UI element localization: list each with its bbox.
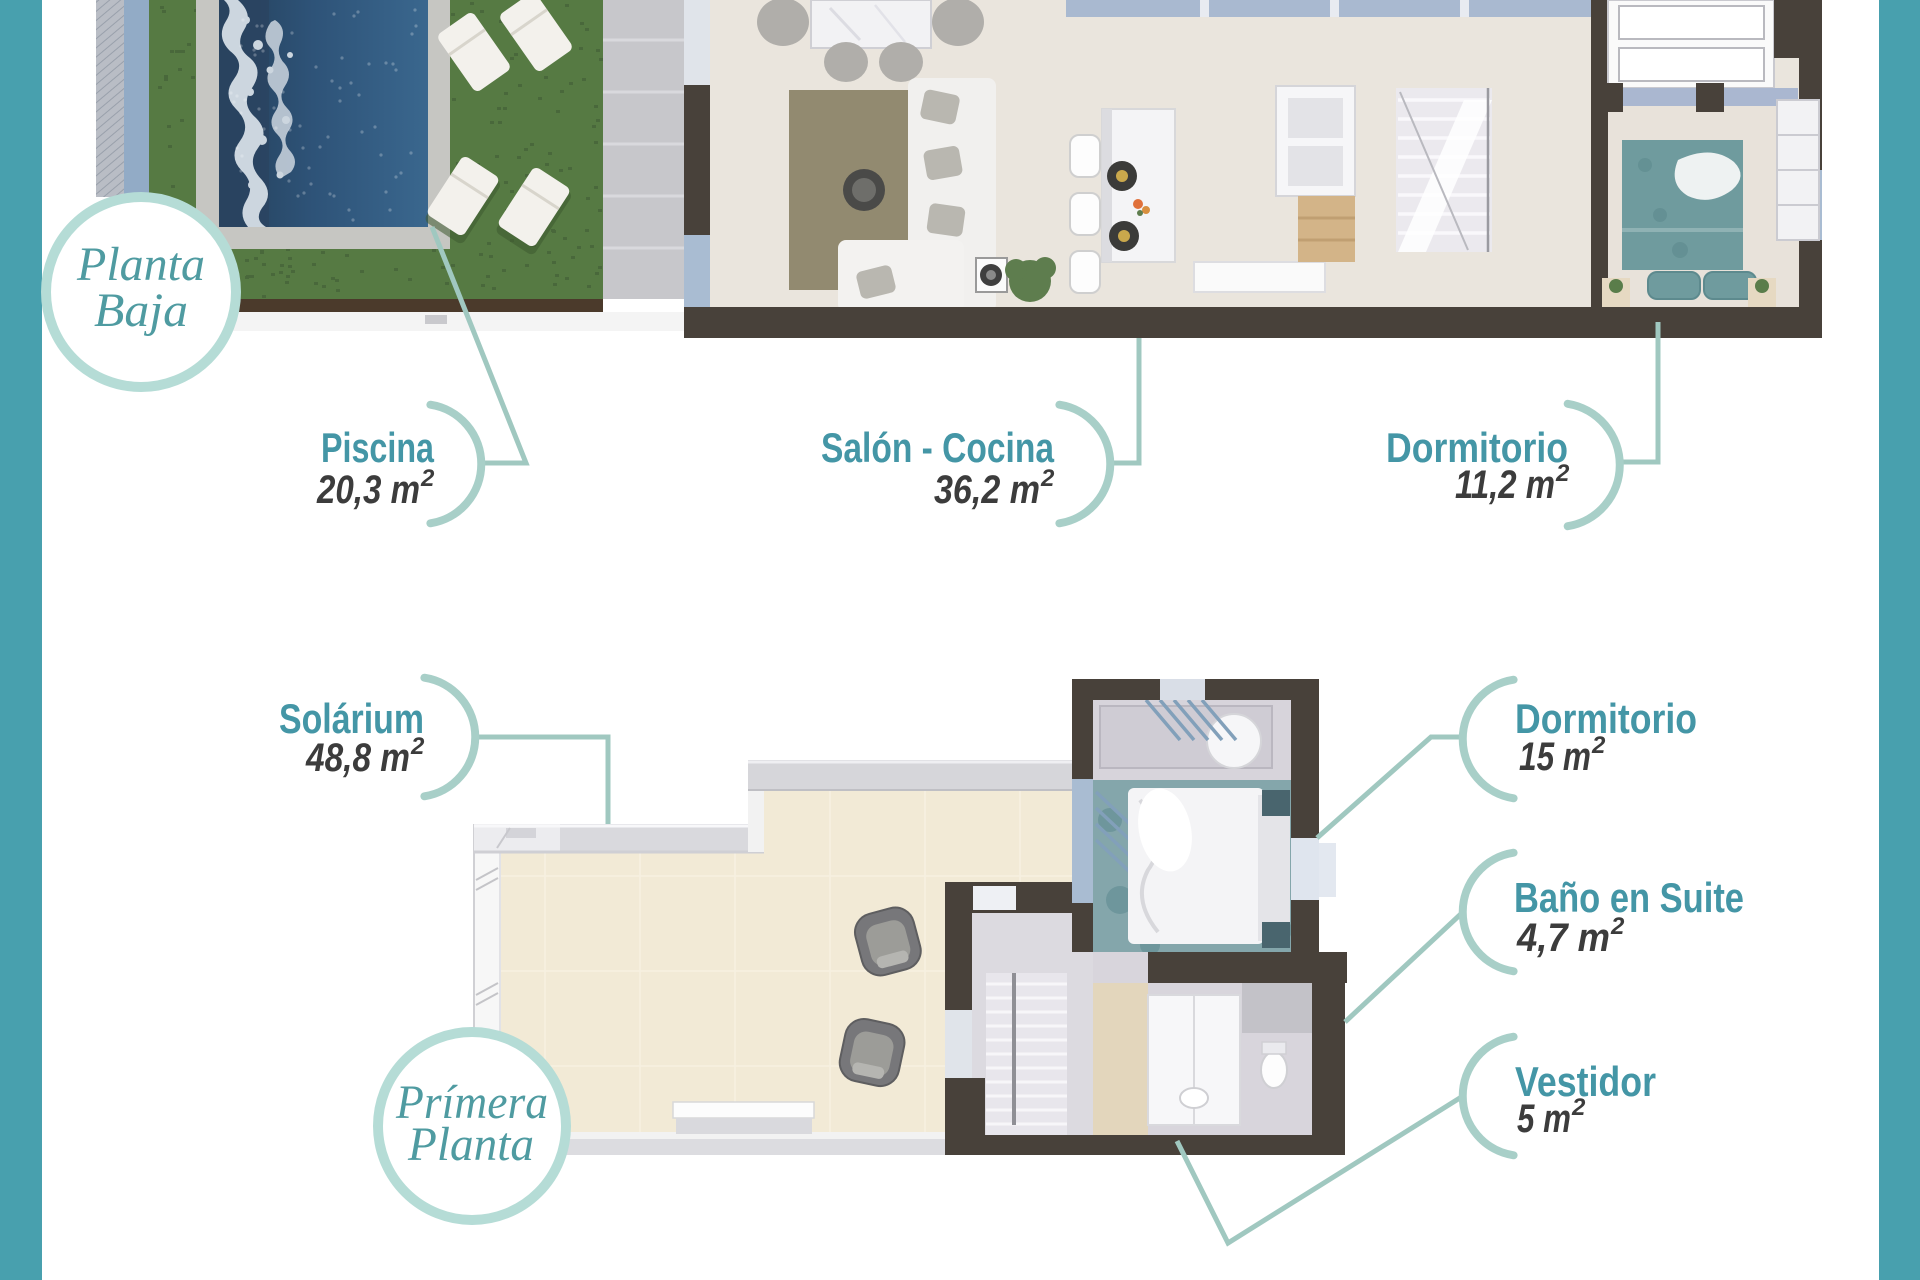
svg-text:36,2 m: 36,2 m [934, 468, 1040, 512]
svg-text:Baja: Baja [94, 284, 188, 337]
svg-text:15 m: 15 m [1519, 735, 1591, 779]
svg-text:2: 2 [410, 733, 425, 760]
svg-text:Salón - Cocina: Salón - Cocina [821, 424, 1055, 471]
svg-text:5 m: 5 m [1517, 1097, 1571, 1141]
svg-text:4,7 m: 4,7 m [1516, 916, 1610, 960]
svg-text:48,8 m: 48,8 m [305, 736, 410, 780]
svg-text:2: 2 [420, 465, 435, 492]
svg-text:Piscina: Piscina [321, 424, 434, 471]
svg-text:2: 2 [1571, 1094, 1586, 1121]
svg-text:Planta: Planta [407, 1118, 534, 1171]
svg-text:2: 2 [1555, 460, 1570, 487]
svg-text:20,3 m: 20,3 m [316, 468, 420, 512]
svg-text:11,2 m: 11,2 m [1455, 463, 1555, 507]
svg-text:Solárium: Solárium [279, 695, 424, 742]
svg-text:Baño en Suite: Baño en Suite [1514, 874, 1744, 921]
svg-text:2: 2 [1610, 913, 1625, 940]
svg-text:2: 2 [1040, 465, 1055, 492]
svg-text:2: 2 [1591, 732, 1606, 759]
